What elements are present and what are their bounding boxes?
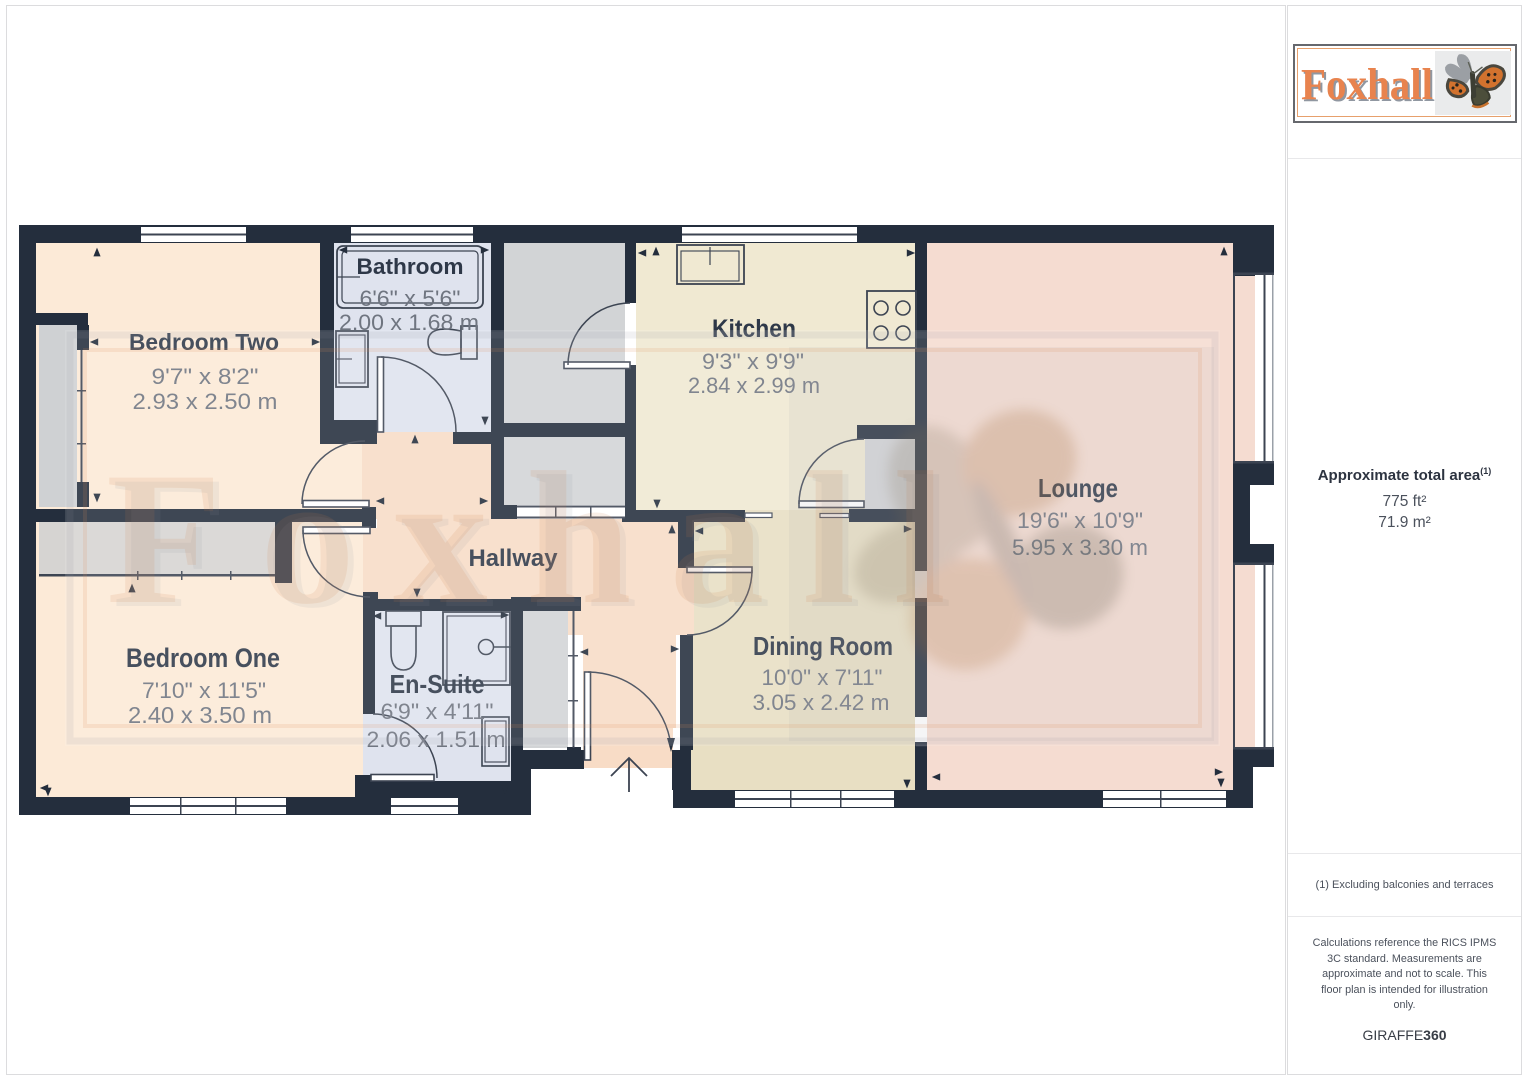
svg-text:Bathroom: Bathroom [357, 254, 464, 279]
svg-text:6'6" x 5'6": 6'6" x 5'6" [360, 286, 461, 311]
svg-text:Foxhall: Foxhall [1301, 60, 1433, 109]
